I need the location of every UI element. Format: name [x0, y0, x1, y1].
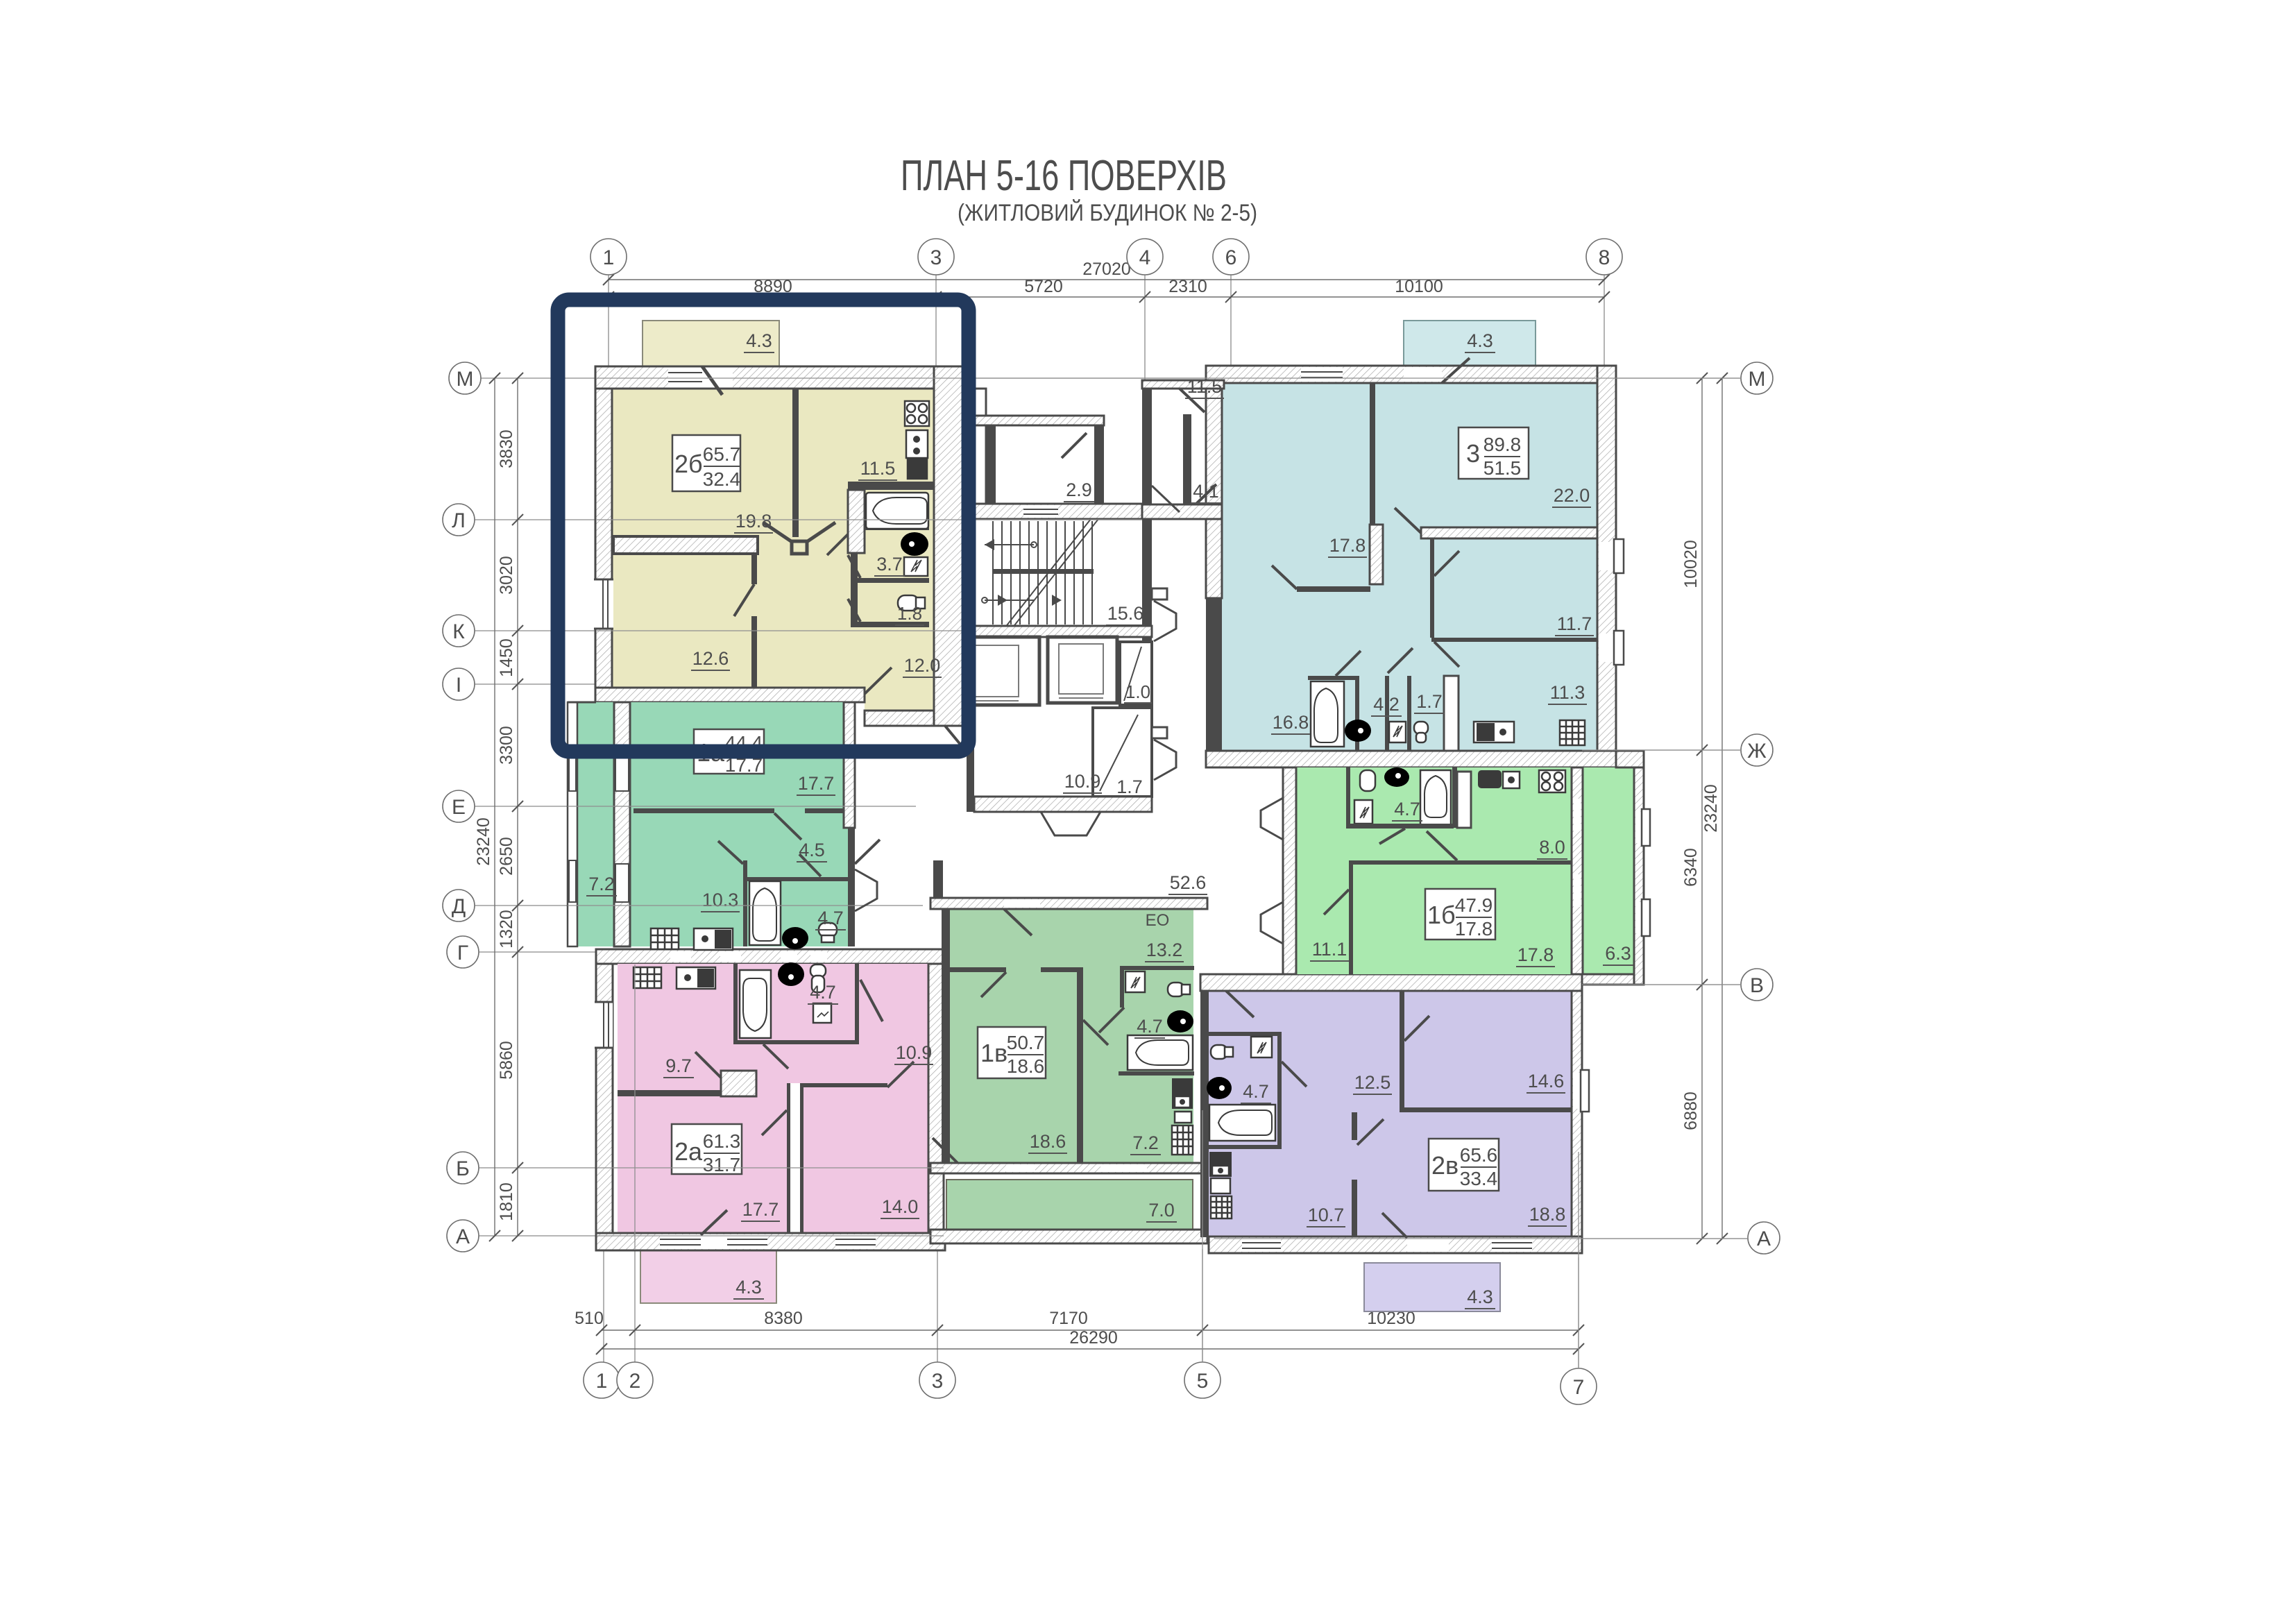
- svg-text:4.7: 4.7: [810, 982, 836, 1003]
- svg-text:15.6: 15.6: [1107, 603, 1144, 624]
- svg-text:8.0: 8.0: [1539, 837, 1565, 858]
- svg-text:6.3: 6.3: [1605, 943, 1631, 964]
- svg-text:31.7: 31.7: [703, 1154, 741, 1175]
- svg-text:5860: 5860: [497, 1041, 516, 1080]
- svg-text:3: 3: [932, 1370, 944, 1393]
- svg-text:В: В: [1750, 974, 1764, 997]
- svg-text:19.8: 19.8: [735, 511, 772, 532]
- svg-text:4.7: 4.7: [1243, 1081, 1269, 1102]
- svg-text:Ж: Ж: [1747, 740, 1767, 763]
- svg-text:Б: Б: [456, 1157, 470, 1180]
- svg-text:А: А: [456, 1225, 470, 1248]
- svg-text:12.6: 12.6: [692, 648, 729, 669]
- svg-text:1в: 1в: [980, 1039, 1007, 1067]
- svg-text:18.8: 18.8: [1529, 1204, 1566, 1225]
- svg-text:18.6: 18.6: [1007, 1055, 1045, 1077]
- svg-text:3.7: 3.7: [876, 554, 903, 575]
- svg-text:2.9: 2.9: [1066, 479, 1092, 500]
- svg-text:16.8: 16.8: [1273, 712, 1309, 733]
- svg-text:3300: 3300: [497, 726, 516, 765]
- svg-text:Д: Д: [452, 895, 466, 918]
- svg-text:1810: 1810: [497, 1182, 516, 1221]
- svg-text:14.0: 14.0: [882, 1196, 919, 1217]
- svg-text:22.0: 22.0: [1554, 485, 1590, 506]
- svg-text:1: 1: [603, 246, 615, 269]
- svg-text:8380: 8380: [764, 1309, 803, 1328]
- svg-text:І: І: [456, 674, 461, 697]
- svg-text:10.9: 10.9: [1064, 771, 1101, 792]
- svg-text:11.5: 11.5: [1187, 376, 1223, 397]
- svg-text:5: 5: [1197, 1370, 1209, 1393]
- svg-text:Е: Е: [452, 796, 466, 819]
- svg-text:1.7: 1.7: [1116, 776, 1143, 797]
- svg-text:10.7: 10.7: [1308, 1205, 1345, 1225]
- svg-text:61.3: 61.3: [703, 1130, 741, 1152]
- svg-text:6: 6: [1225, 246, 1237, 269]
- svg-text:1.8: 1.8: [897, 603, 922, 624]
- svg-text:1: 1: [596, 1370, 608, 1393]
- svg-text:(ЖИТЛОВИЙ БУДИНОК № 2-5): (ЖИТЛОВИЙ БУДИНОК № 2-5): [958, 200, 1257, 226]
- svg-text:7: 7: [1573, 1376, 1585, 1399]
- svg-text:17.8: 17.8: [1455, 918, 1493, 940]
- svg-text:12.0: 12.0: [904, 655, 941, 676]
- svg-text:50.7: 50.7: [1007, 1032, 1045, 1053]
- svg-text:18.6: 18.6: [1030, 1131, 1066, 1152]
- svg-text:4.5: 4.5: [799, 840, 825, 860]
- svg-text:4.2: 4.2: [1373, 694, 1400, 715]
- svg-text:2в: 2в: [1431, 1151, 1459, 1180]
- svg-text:10.3: 10.3: [702, 890, 739, 910]
- svg-text:Г: Г: [457, 942, 468, 965]
- svg-text:3830: 3830: [497, 430, 516, 468]
- svg-text:3: 3: [1466, 439, 1480, 468]
- svg-text:9.7: 9.7: [665, 1055, 692, 1076]
- svg-text:65.7: 65.7: [703, 443, 741, 465]
- svg-text:14.6: 14.6: [1528, 1071, 1565, 1091]
- svg-text:3: 3: [930, 246, 942, 269]
- svg-text:7.2: 7.2: [1132, 1132, 1159, 1153]
- svg-text:2310: 2310: [1168, 277, 1207, 296]
- svg-text:М: М: [1749, 368, 1766, 391]
- svg-text:10.9: 10.9: [896, 1042, 933, 1063]
- svg-text:А: А: [1757, 1227, 1771, 1250]
- svg-text:8: 8: [1599, 246, 1610, 269]
- svg-text:4.3: 4.3: [746, 330, 772, 351]
- svg-text:17.8: 17.8: [1329, 535, 1366, 556]
- svg-text:10020: 10020: [1681, 540, 1701, 588]
- svg-text:4.3: 4.3: [1467, 330, 1493, 351]
- svg-text:17.8: 17.8: [1517, 944, 1554, 965]
- svg-text:23240: 23240: [474, 817, 493, 866]
- svg-text:4.3: 4.3: [1467, 1286, 1493, 1307]
- svg-text:12.5: 12.5: [1354, 1072, 1391, 1093]
- svg-text:11.7: 11.7: [1557, 613, 1592, 634]
- svg-text:1б: 1б: [1427, 901, 1456, 929]
- svg-text:26290: 26290: [1069, 1328, 1118, 1348]
- svg-text:1.7: 1.7: [1416, 691, 1443, 712]
- svg-text:ЕО: ЕО: [1146, 911, 1170, 930]
- svg-text:4.7: 4.7: [817, 908, 844, 928]
- svg-text:5720: 5720: [1024, 277, 1063, 296]
- svg-text:ПЛАН 5-16 ПОВЕРХІВ: ПЛАН 5-16 ПОВЕРХІВ: [901, 152, 1227, 200]
- svg-text:33.4: 33.4: [1460, 1168, 1498, 1189]
- svg-text:2б: 2б: [674, 450, 703, 478]
- svg-text:510: 510: [575, 1309, 604, 1328]
- svg-text:51.5: 51.5: [1483, 457, 1522, 479]
- svg-text:3020: 3020: [497, 556, 516, 595]
- svg-text:2: 2: [629, 1370, 641, 1393]
- svg-text:27020: 27020: [1082, 260, 1131, 279]
- svg-text:10100: 10100: [1395, 277, 1443, 296]
- svg-text:11.5: 11.5: [860, 458, 896, 479]
- svg-text:1450: 1450: [497, 638, 516, 677]
- svg-text:47.9: 47.9: [1455, 894, 1493, 916]
- svg-text:11.1: 11.1: [1312, 939, 1347, 960]
- svg-text:4.7: 4.7: [1394, 799, 1420, 819]
- svg-text:4: 4: [1139, 246, 1151, 269]
- svg-text:52.6: 52.6: [1170, 872, 1207, 893]
- svg-text:7.0: 7.0: [1148, 1200, 1175, 1221]
- svg-text:32.4: 32.4: [703, 468, 741, 490]
- svg-text:Л: Л: [452, 509, 466, 532]
- svg-text:2650: 2650: [497, 837, 516, 876]
- svg-text:М: М: [457, 368, 474, 391]
- svg-text:13.2: 13.2: [1146, 940, 1183, 960]
- svg-text:17.7: 17.7: [798, 773, 835, 794]
- svg-text:4.1: 4.1: [1193, 481, 1219, 502]
- svg-text:23240: 23240: [1701, 784, 1721, 833]
- svg-text:6340: 6340: [1681, 848, 1701, 887]
- svg-text:7170: 7170: [1049, 1309, 1088, 1328]
- svg-text:17.7: 17.7: [742, 1199, 779, 1220]
- svg-text:89.8: 89.8: [1483, 434, 1522, 455]
- svg-text:65.6: 65.6: [1460, 1144, 1498, 1166]
- svg-text:1320: 1320: [497, 910, 516, 949]
- svg-text:4.7: 4.7: [1137, 1016, 1163, 1037]
- svg-text:2а: 2а: [674, 1137, 703, 1166]
- svg-text:7.2: 7.2: [588, 874, 615, 894]
- svg-text:6880: 6880: [1681, 1091, 1701, 1130]
- svg-text:4.3: 4.3: [735, 1277, 762, 1298]
- svg-text:11.3: 11.3: [1550, 682, 1585, 703]
- svg-text:К: К: [452, 620, 465, 643]
- svg-text:1.0: 1.0: [1125, 681, 1150, 702]
